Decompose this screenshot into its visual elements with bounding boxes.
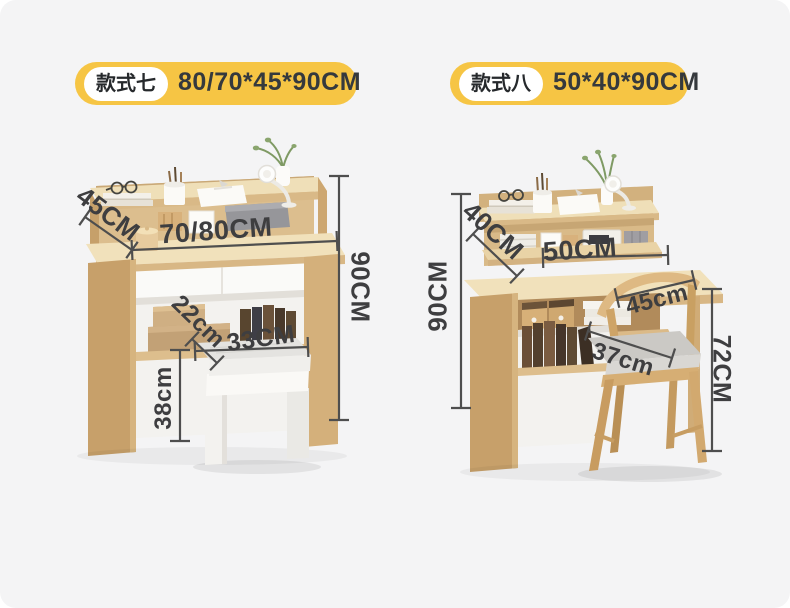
left-stool-height-label: 38cm (150, 366, 178, 429)
right-desk-height-label: 90CM (423, 260, 454, 331)
style-eight-badge: 款式八 50*40*90CM (450, 62, 688, 105)
pen-cup-prop (533, 173, 552, 213)
style-seven-badge: 款式七 80/70*45*90CM (75, 62, 357, 105)
right-desk-width-label: 50CM (542, 232, 618, 268)
style-seven-dimensions: 80/70*45*90CM (168, 68, 373, 99)
plant-prop (253, 138, 297, 168)
style-eight-name: 款式八 (459, 67, 543, 101)
pen-cup-prop (164, 167, 185, 205)
product-dimension-sheet: 款式七 80/70*45*90CM 款式八 50*40*90CM 45CM 70… (0, 0, 790, 608)
style-eight-dimensions: 50*40*90CM (543, 68, 712, 99)
style-seven-name: 款式七 (84, 67, 168, 101)
right-chair-height-label: 72CM (707, 335, 736, 404)
left-desk-height-label: 90CM (345, 251, 376, 322)
